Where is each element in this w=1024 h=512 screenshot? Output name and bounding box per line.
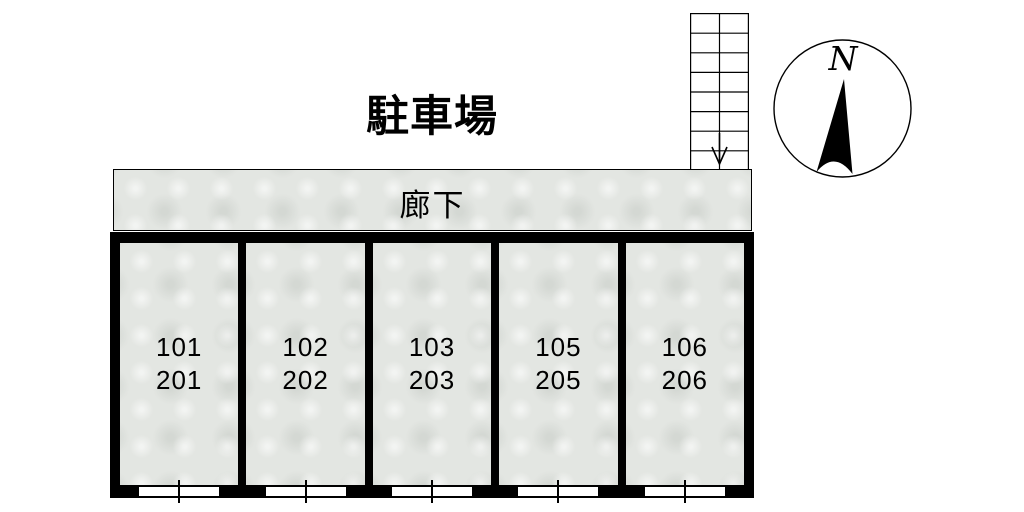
rooms-block: 101 201 102 202 103 203 [110, 232, 754, 498]
room-number-floor2: 206 [662, 364, 708, 397]
site-floor-plan: 駐車場 N 廊下 101 201 [0, 0, 1024, 512]
room-number-floor2: 203 [409, 364, 455, 397]
window-mullion [557, 480, 559, 503]
room-number-floor1: 102 [282, 331, 328, 364]
room-number: 105 205 [535, 331, 581, 397]
parking-lot-label: 駐車場 [110, 82, 754, 144]
room-number: 102 202 [282, 331, 328, 397]
room-105-205: 105 205 [499, 243, 617, 485]
compass-north-label: N [828, 39, 859, 78]
room-103-203: 103 203 [373, 243, 491, 485]
room-number-floor1: 105 [535, 331, 581, 364]
window-symbol [645, 485, 725, 498]
window-mullion [178, 480, 180, 503]
window-mullion [305, 480, 307, 503]
window-symbol [392, 485, 472, 498]
window-symbol [139, 485, 219, 498]
staircase [690, 13, 750, 171]
room-102-202: 102 202 [246, 243, 364, 485]
corridor-label: 廊下 [400, 175, 466, 225]
room-106-206: 106 206 [626, 243, 744, 485]
room-101-201: 101 201 [120, 243, 238, 485]
room-number: 101 201 [156, 331, 202, 397]
room-number-floor1: 101 [156, 331, 202, 364]
room-number-floor2: 201 [156, 364, 202, 397]
room-number-floor2: 205 [535, 364, 581, 397]
room-number-floor1: 103 [409, 331, 455, 364]
room-number-floor1: 106 [662, 331, 708, 364]
room-number: 103 203 [409, 331, 455, 397]
window-symbol [518, 485, 598, 498]
room-number-floor2: 202 [282, 364, 328, 397]
window-mullion [684, 480, 686, 503]
window-symbol [266, 485, 346, 498]
compass: N [771, 37, 915, 181]
window-mullion [431, 480, 433, 503]
corridor: 廊下 [113, 169, 752, 231]
room-number: 106 206 [662, 331, 708, 397]
